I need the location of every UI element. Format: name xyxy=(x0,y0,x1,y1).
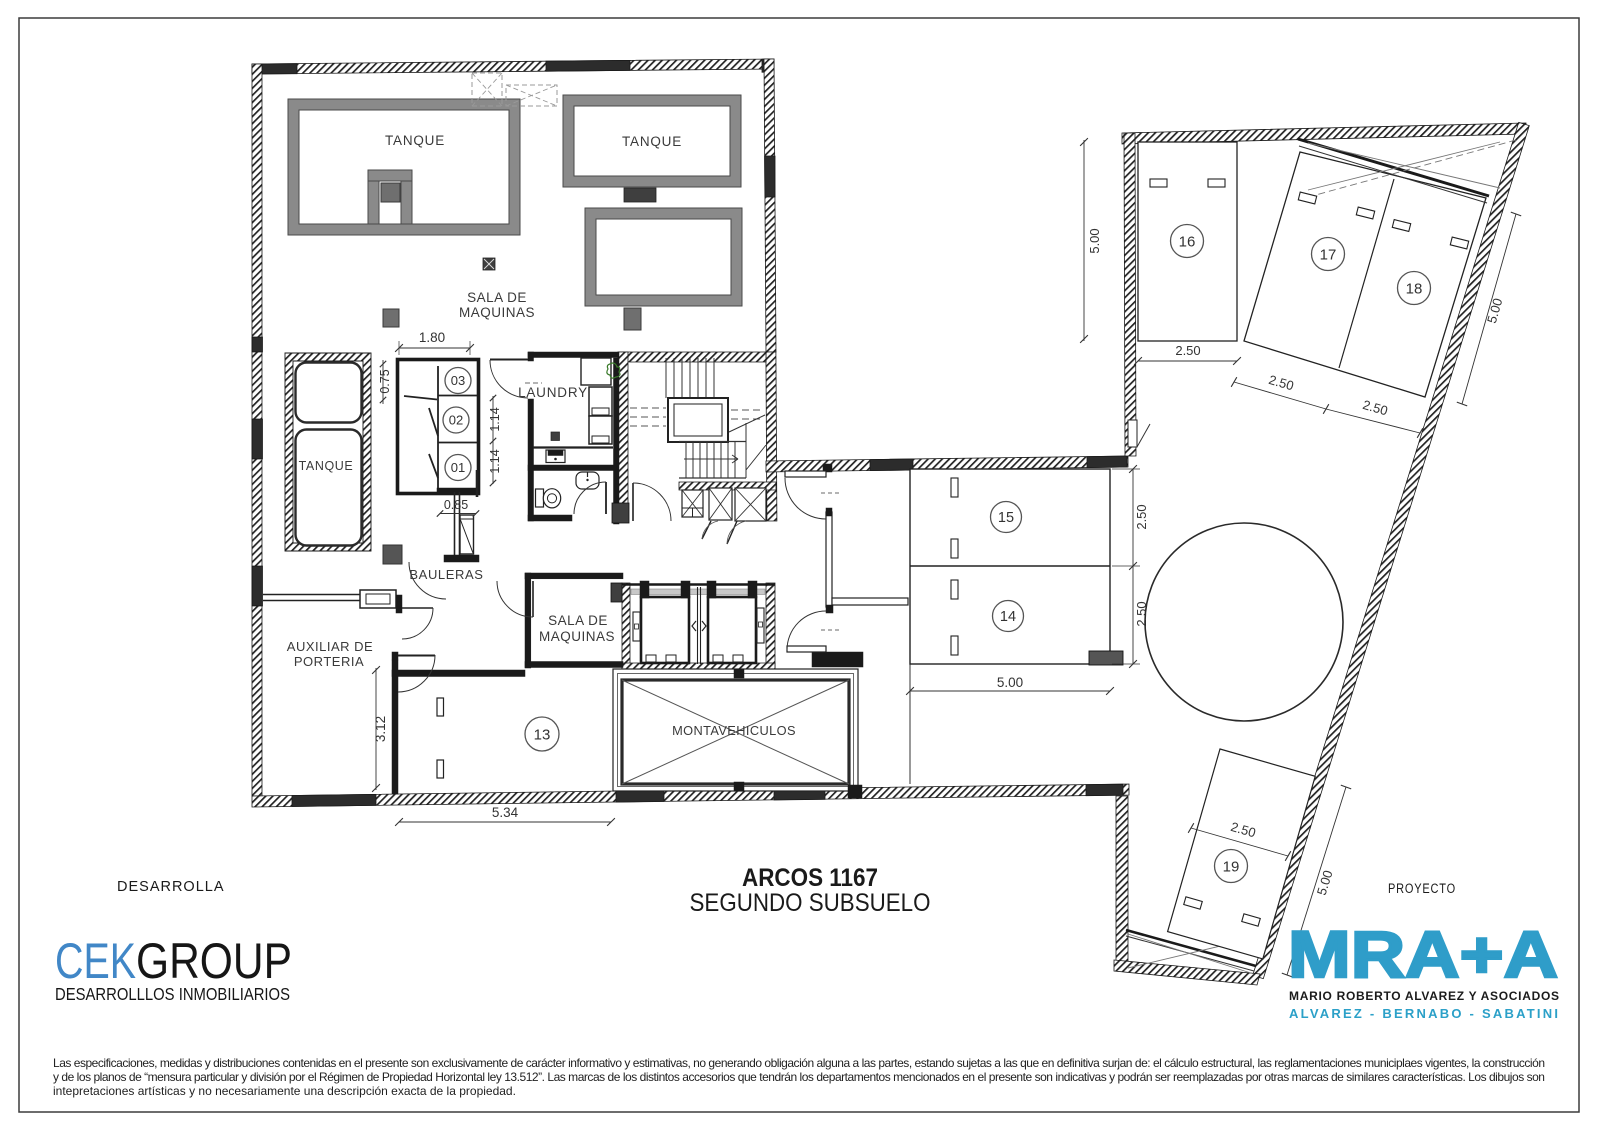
svg-text:MAQUINAS: MAQUINAS xyxy=(459,305,535,320)
svg-text:19: 19 xyxy=(1223,858,1240,875)
svg-text:GROUP: GROUP xyxy=(136,933,292,989)
svg-text:MONTAVEHICULOS: MONTAVEHICULOS xyxy=(672,723,796,738)
svg-text:1.14: 1.14 xyxy=(488,449,502,473)
svg-text:BAULERAS: BAULERAS xyxy=(409,567,483,582)
svg-text:2.50: 2.50 xyxy=(1175,343,1200,358)
svg-text:0.75: 0.75 xyxy=(378,369,392,393)
svg-text:ARCOS 1167: ARCOS 1167 xyxy=(742,864,878,892)
svg-text:PROYECTO: PROYECTO xyxy=(1388,881,1456,896)
svg-text:1.14: 1.14 xyxy=(488,407,502,431)
svg-text:02: 02 xyxy=(449,413,463,428)
svg-text:TANQUE: TANQUE xyxy=(299,459,354,473)
svg-text:13: 13 xyxy=(534,726,551,743)
svg-text:y de los planos de “mensura pa: y de los planos de “mensura particular y… xyxy=(53,1070,1545,1084)
svg-text:14: 14 xyxy=(1000,609,1016,625)
svg-text:01: 01 xyxy=(451,460,465,475)
svg-text:15: 15 xyxy=(998,510,1014,526)
svg-text:CEK: CEK xyxy=(55,933,136,989)
svg-text:5.34: 5.34 xyxy=(492,805,519,820)
svg-text:0.85: 0.85 xyxy=(444,498,468,512)
svg-text:AUXILIAR DE: AUXILIAR DE xyxy=(287,639,373,654)
svg-text:PORTERIA: PORTERIA xyxy=(294,654,364,669)
svg-text:3.12: 3.12 xyxy=(373,716,388,742)
svg-text:intepretaciones artísticas y n: intepretaciones artísticas y no necesari… xyxy=(53,1084,516,1098)
svg-text:Las especificaciones, medidas: Las especificaciones, medidas y distribu… xyxy=(53,1056,1545,1070)
svg-text:SEGUNDO SUBSUELO: SEGUNDO SUBSUELO xyxy=(690,889,931,917)
svg-text:DESARROLLLOS INMOBILIARIOS: DESARROLLLOS INMOBILIARIOS xyxy=(55,984,290,1004)
svg-text:MRA+A: MRA+A xyxy=(1288,917,1558,991)
svg-text:5.00: 5.00 xyxy=(1087,228,1102,253)
svg-text:LAUNDRY: LAUNDRY xyxy=(518,385,588,400)
svg-text:MARIO ROBERTO ALVAREZ Y ASOCIA: MARIO ROBERTO ALVAREZ Y ASOCIADOS xyxy=(1289,989,1559,1003)
svg-text:2.50: 2.50 xyxy=(1134,504,1149,529)
svg-text:DESARROLLA: DESARROLLA xyxy=(117,879,225,895)
svg-text:TANQUE: TANQUE xyxy=(385,133,445,148)
svg-text:16: 16 xyxy=(1179,233,1196,250)
svg-text:03: 03 xyxy=(451,373,465,388)
svg-text:18: 18 xyxy=(1406,280,1423,297)
svg-text:5.00: 5.00 xyxy=(997,675,1023,690)
svg-text:TANQUE: TANQUE xyxy=(622,134,682,149)
svg-text:SALA DE: SALA DE xyxy=(548,613,608,628)
svg-text:17: 17 xyxy=(1320,246,1337,263)
svg-text:1.80: 1.80 xyxy=(419,330,445,345)
svg-text:MAQUINAS: MAQUINAS xyxy=(539,629,615,644)
svg-text:SALA DE: SALA DE xyxy=(467,290,527,305)
